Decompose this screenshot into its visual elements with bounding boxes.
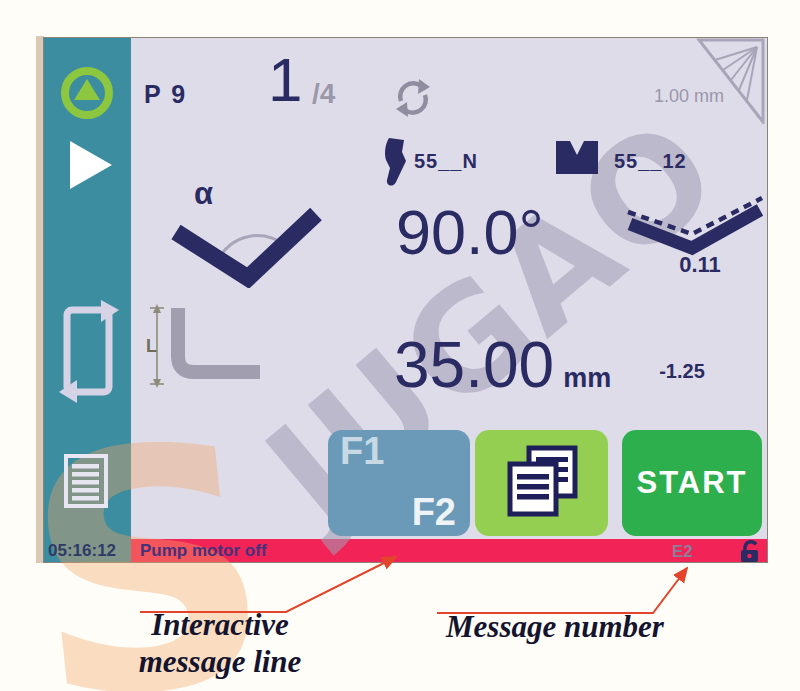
loop-cycle-icon[interactable] — [57, 296, 121, 410]
copy-pages-icon — [502, 444, 582, 523]
f1-label: F1 — [340, 430, 384, 473]
bend-number: 1 — [268, 44, 302, 115]
copy-pages-button[interactable] — [475, 430, 608, 536]
length-value[interactable]: 35.00 — [394, 328, 554, 402]
annotation-line-2: message line — [80, 643, 360, 680]
message-number: E2 — [672, 542, 693, 562]
corner-ruler-icon — [696, 38, 766, 128]
springback-correction[interactable]: 0.11 — [640, 252, 760, 278]
l-profile-icon: L — [144, 302, 274, 396]
auto-mode-icon[interactable] — [58, 64, 116, 126]
program-number: P 9 — [144, 80, 187, 109]
start-button[interactable]: START — [622, 430, 762, 536]
die-name[interactable]: 55__12 — [614, 150, 687, 173]
length-correction[interactable]: -1.25 — [642, 360, 722, 383]
bend-total: /4 — [312, 78, 335, 110]
rotate-icon — [393, 78, 433, 122]
punch-icon — [382, 136, 408, 196]
length-field[interactable]: 35.00 mm — [394, 328, 611, 402]
status-message: Pump motor off — [140, 541, 267, 561]
lock-icon[interactable] — [738, 539, 762, 567]
length-unit: mm — [563, 363, 611, 394]
f2-label: F2 — [412, 491, 456, 534]
page: P 9 1 /4 1.00 mm — [0, 0, 800, 691]
angle-value[interactable]: 90.0° — [396, 196, 544, 268]
annotation-line-1: Interactive — [80, 606, 360, 643]
play-icon[interactable] — [68, 140, 114, 194]
die-icon — [554, 138, 600, 180]
annotation-interactive-message-line: Interactive message line — [80, 606, 360, 680]
f1-f2-button[interactable]: F1 F2 — [328, 430, 470, 536]
clock: 05:16:12 — [48, 541, 128, 561]
program-list-icon[interactable] — [64, 454, 108, 512]
springback-icon — [624, 194, 766, 260]
screen-left-edge — [36, 36, 44, 563]
punch-name[interactable]: 55__N — [414, 150, 478, 173]
svg-text:L: L — [146, 336, 157, 356]
annotation-message-number: Message number — [415, 608, 695, 645]
control-screen: P 9 1 /4 1.00 mm — [44, 38, 767, 562]
angle-icon — [168, 204, 322, 292]
